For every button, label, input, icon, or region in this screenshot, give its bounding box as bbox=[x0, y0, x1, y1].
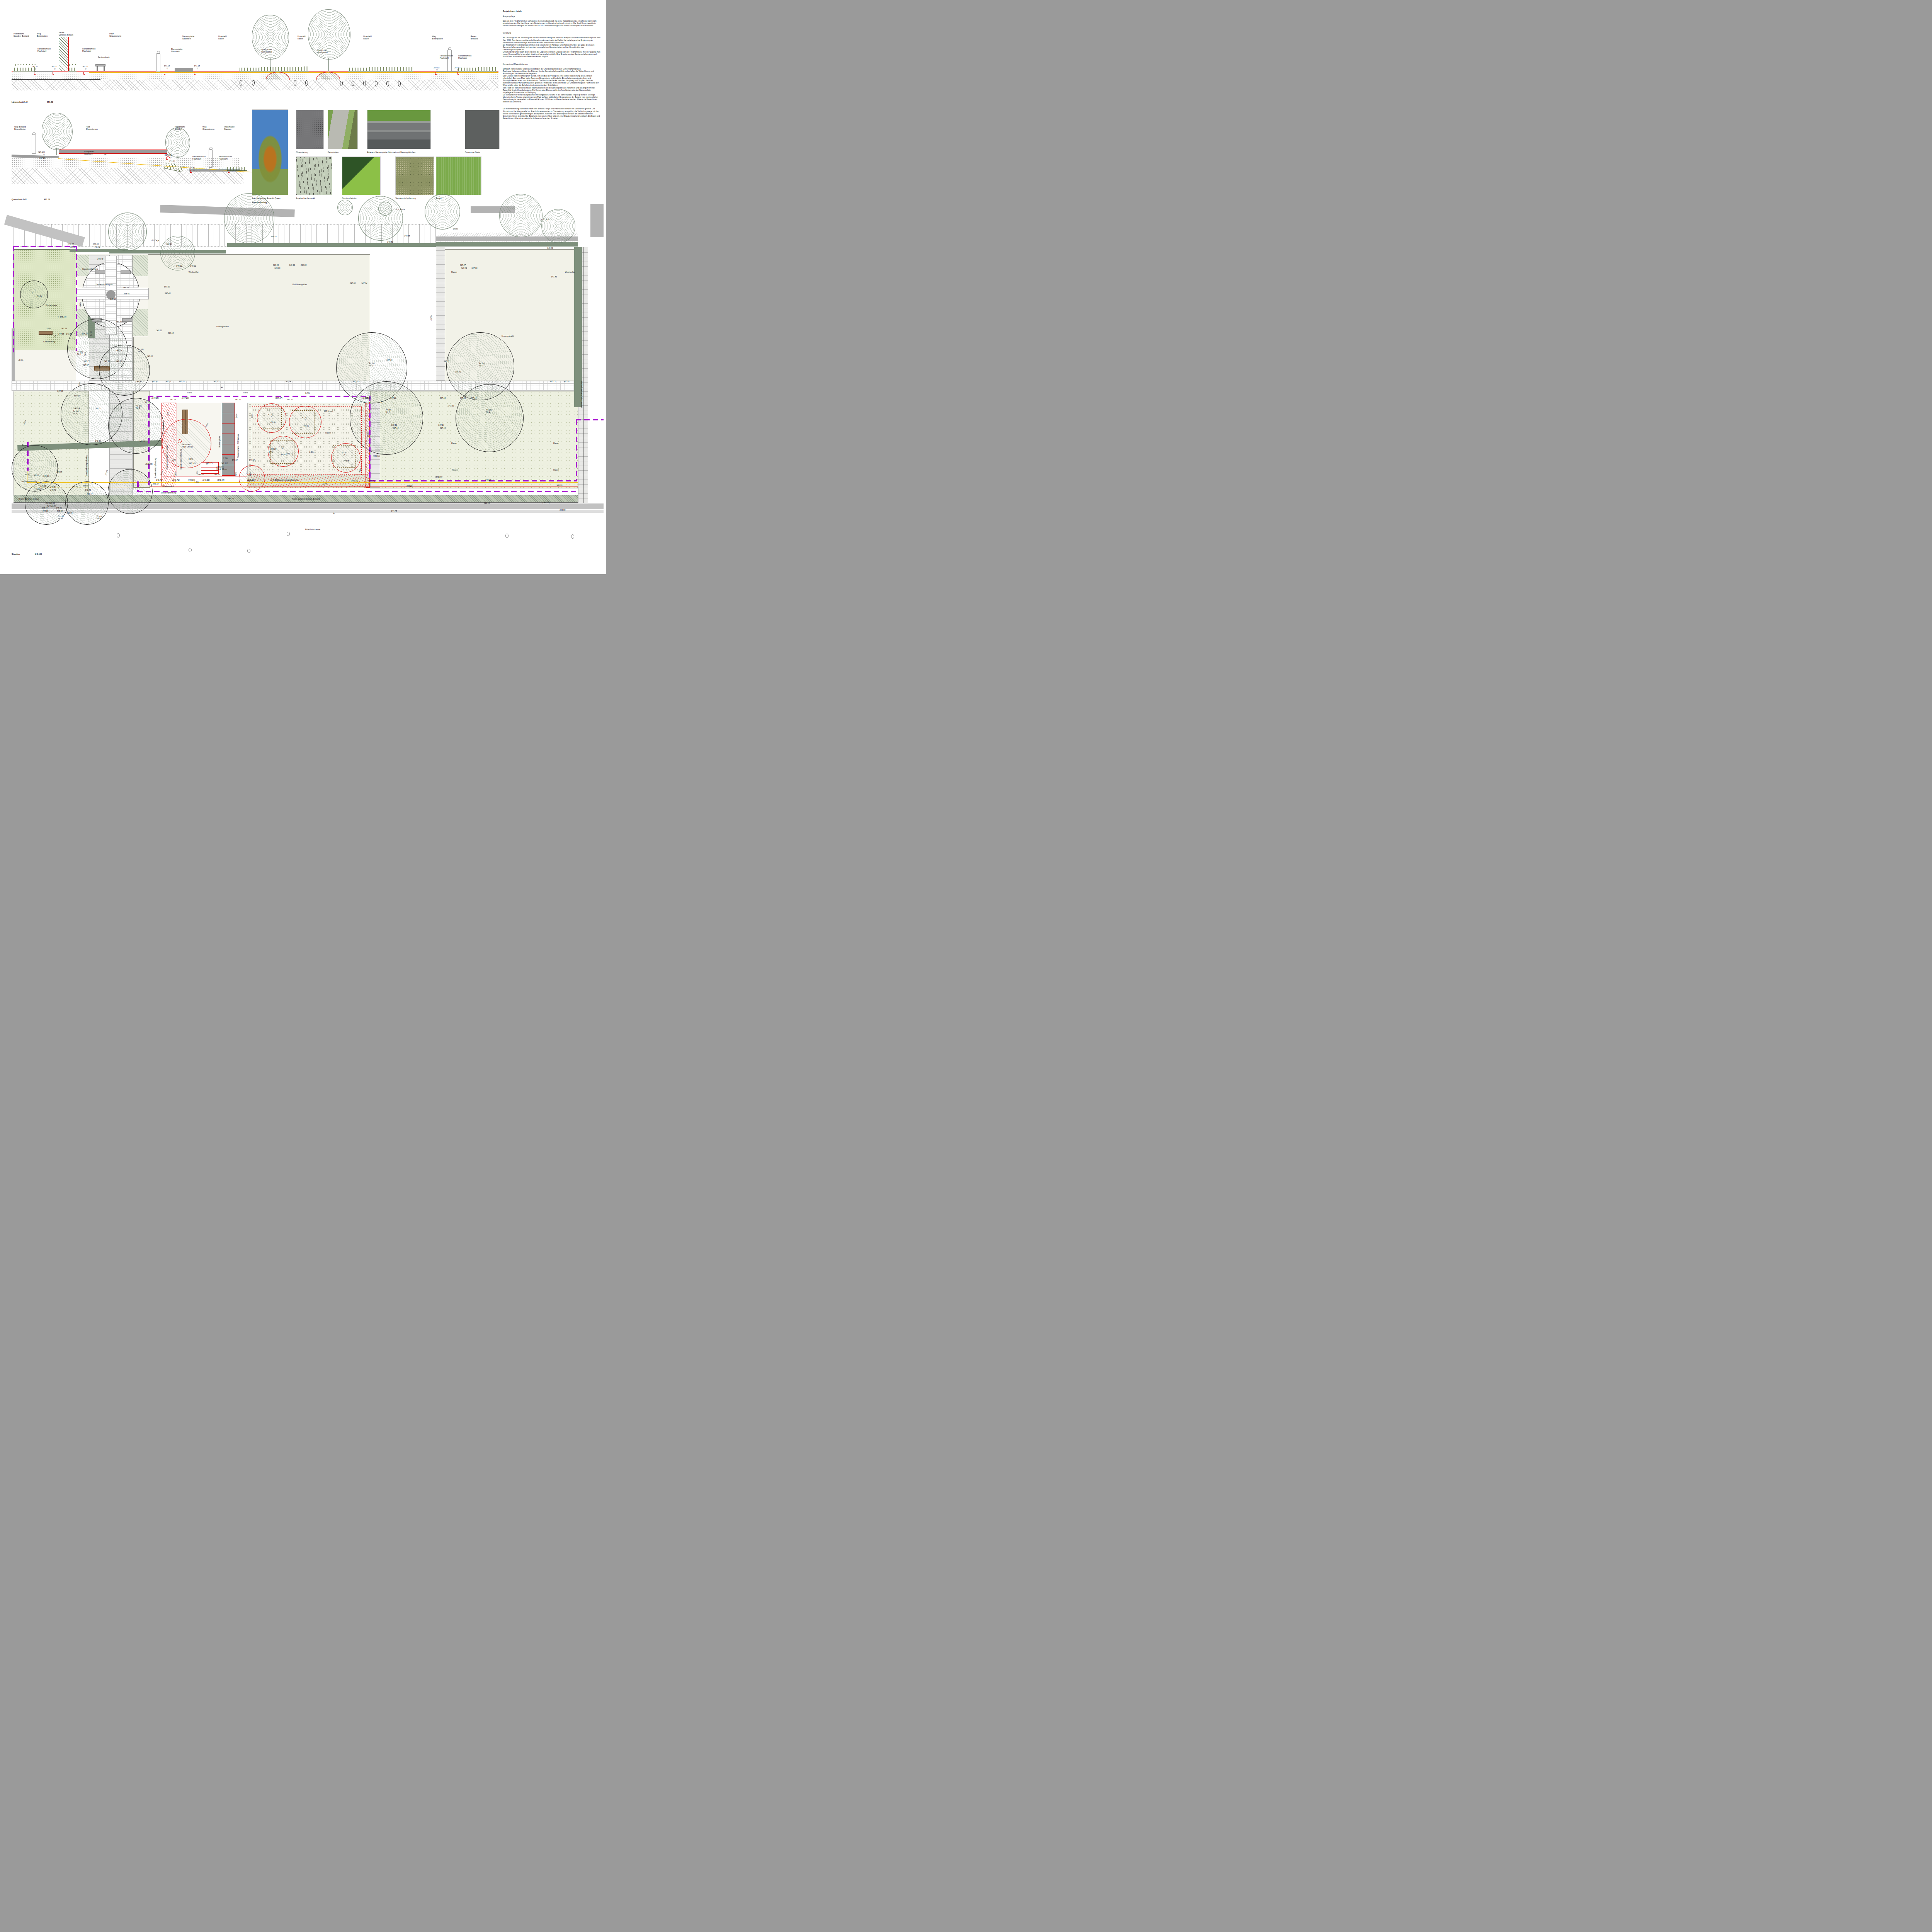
plan-label: 347.87 bbox=[460, 264, 466, 267]
plan-label: Rasen bbox=[451, 271, 457, 274]
plan-label: 349.00 bbox=[274, 267, 280, 270]
plan-label: 348.10 bbox=[168, 332, 173, 335]
plan-label: 4.5% bbox=[269, 451, 273, 454]
plan-label: 347.80 bbox=[66, 333, 72, 335]
plan-label: 346.65 bbox=[198, 474, 204, 476]
plan-label: Am la bbox=[281, 454, 286, 456]
plan-label: ▲ bbox=[206, 463, 208, 465]
plan-label: OK 346.53 bbox=[47, 505, 56, 508]
plan-label: 345.84 bbox=[50, 486, 56, 488]
plan-label: 346.65 bbox=[270, 448, 276, 451]
plan-label: 348.48 bbox=[110, 298, 116, 301]
plan-label: 347.14 bbox=[471, 397, 476, 400]
plan-label: Hecke Carpinus betulus bbox=[19, 498, 39, 500]
plan-sheet: Längsschnitt A-A'M 1:50Pflanzfläche Stau… bbox=[0, 0, 606, 574]
plan-label: 0.4% bbox=[305, 392, 310, 395]
plan-label: 347.41 bbox=[136, 381, 142, 383]
street-label: Friedhofstrasse bbox=[305, 529, 320, 531]
plan-label: 348.12 bbox=[156, 330, 162, 332]
plan-label: 345.82 bbox=[72, 486, 78, 488]
plan-label: Ac (pl) Nr. 6 bbox=[136, 405, 141, 410]
plan-label: OK 346.66 bbox=[46, 502, 55, 505]
plan-label: 349.92 bbox=[166, 243, 172, 246]
plan-label: Am la bbox=[344, 460, 349, 462]
plan-label: Ac (pl) Nr. 7 bbox=[77, 351, 83, 355]
tree-mark: + + + bbox=[342, 451, 347, 456]
plan-label: 346.28 bbox=[485, 479, 491, 481]
plan-label: 346.26 bbox=[556, 485, 562, 487]
plan-label: Am la bbox=[304, 425, 309, 427]
plan-label: 347.20 bbox=[287, 399, 293, 401]
plan-label: 347.18 bbox=[352, 381, 358, 383]
plan-label: 347.14 bbox=[438, 424, 444, 427]
plan-label: 347.33 bbox=[448, 405, 454, 407]
plan-label: 347.20 bbox=[235, 399, 241, 401]
plan-label: 205 Urnen bbox=[324, 410, 333, 413]
plan-label: Urnengrabfeld bbox=[216, 326, 229, 328]
plan-label: Staudenpflanzung bbox=[82, 268, 98, 270]
plan-label: (346.38) bbox=[351, 480, 358, 482]
plan-label: Ac (pl) Nr. 3 bbox=[369, 362, 374, 367]
plan-label: Staudenmischpflanzung bbox=[86, 456, 88, 476]
plan-label: 346.86 bbox=[33, 474, 39, 477]
plan-label: 347.37 bbox=[165, 381, 171, 383]
plan-label: 345.60 bbox=[56, 507, 62, 509]
plan-label: 345.35 bbox=[66, 512, 72, 515]
plan-label: 347.15 bbox=[549, 381, 555, 383]
plan-label: 345.79 bbox=[50, 489, 56, 492]
plan-label: 345.95 bbox=[56, 471, 62, 473]
plan-label: 346.83 bbox=[43, 475, 49, 478]
plan-label: 45% bbox=[196, 471, 199, 474]
plan-label: Rasen bbox=[553, 469, 559, 471]
plan-label: (346.51) bbox=[373, 455, 380, 457]
plan-label: 348.41 bbox=[455, 371, 461, 373]
plan-label: ~6.6% bbox=[23, 420, 27, 425]
plan-label: 350.07 bbox=[68, 243, 74, 246]
tree-mark: + + + bbox=[268, 413, 273, 418]
plan-label: Staudenmischpflanzung bbox=[155, 458, 157, 478]
tree-mark: + + + bbox=[30, 289, 37, 294]
plan-label: 2.0% bbox=[205, 423, 209, 428]
plan-label: Erd-Urnengräber bbox=[293, 284, 307, 286]
plan-label: 347.23 bbox=[170, 399, 176, 401]
plan-label: Wechselflor bbox=[189, 271, 199, 274]
plan-label: Rasen bbox=[325, 432, 331, 434]
plan-label: 347.14 bbox=[460, 397, 466, 400]
plan-label: (347.23) bbox=[182, 397, 189, 400]
plan-label: 346.13 bbox=[484, 502, 490, 505]
plan-label: Am la bbox=[37, 295, 42, 298]
plan-label: 2.0% bbox=[189, 458, 193, 461]
plan-label: 347.13 bbox=[440, 427, 446, 430]
plan-label: 3 Stufen 15+1/ 33 cm bbox=[216, 466, 227, 471]
plan-label: 348.19 bbox=[116, 350, 122, 352]
plan-label: 346.55 bbox=[228, 498, 234, 500]
plan-label: Ac (pl) Nr. 1 bbox=[479, 362, 485, 367]
plan-label: 344.75 bbox=[391, 510, 397, 512]
plan-label: 349.01 bbox=[190, 265, 196, 267]
plan-label: 350.04 bbox=[94, 247, 100, 249]
plan-label: 346.83 bbox=[36, 488, 42, 491]
plan-label: Ac (pl) Nr. 8 bbox=[73, 410, 78, 415]
plan-label: Chaussierung bbox=[43, 341, 55, 343]
plan-label: 347.16 bbox=[440, 397, 446, 400]
neighbor-hedge-label: Hecke Thuja, Nachbarsparzelle bbox=[581, 381, 583, 408]
plan-label: 43% bbox=[235, 472, 237, 476]
plan-label: 6.7% bbox=[78, 382, 81, 387]
plan-label: (346.06) bbox=[543, 502, 550, 504]
plan-label: 347.25 bbox=[213, 381, 219, 383]
plan-label: Rasen bbox=[452, 469, 457, 471]
plan-label: (~348.14) bbox=[58, 316, 66, 318]
tree-mark: + + + bbox=[302, 417, 307, 421]
plan-label: 0.6% bbox=[243, 392, 248, 394]
plan-label: 347.52 bbox=[164, 286, 170, 288]
plan-label: 348.46 bbox=[124, 293, 129, 295]
plan-label: 347.38 bbox=[151, 381, 157, 383]
plan-label: 4.5% bbox=[309, 451, 313, 454]
plan-label: (346.64) bbox=[217, 479, 224, 481]
plan-label: Ac (pl) Nr. 5 bbox=[138, 349, 143, 353]
plan-label: 348.99 bbox=[273, 264, 279, 267]
plan-label: 348.86 bbox=[301, 264, 306, 267]
plan-label: 347.12 bbox=[391, 424, 397, 427]
plan-label: Staudenpflanzung bbox=[161, 492, 176, 494]
plan-label: (346.59) bbox=[270, 479, 278, 481]
section-marker-a2: A' bbox=[381, 401, 383, 403]
plan-label: 347.34 bbox=[74, 395, 80, 397]
plan-label: (347.25) bbox=[151, 397, 159, 400]
plan-label: Staudenmischpflanzung bbox=[180, 449, 182, 469]
plan-label: z.B. Ce ja bbox=[541, 219, 549, 221]
plan-label: 346.86 bbox=[139, 440, 145, 443]
plan-title: Situation bbox=[12, 553, 20, 556]
plan-label: ~3.5% bbox=[430, 315, 433, 321]
plan-label: 3.8% bbox=[46, 328, 51, 330]
plan-label: 347.35 bbox=[179, 381, 184, 383]
plan-label: Cr x la Nr 16 bbox=[97, 515, 102, 520]
plan-label: ~14% bbox=[80, 302, 82, 307]
plan-label: Gemeinschaftsgrab bbox=[96, 284, 112, 286]
section-marker-a: A bbox=[145, 401, 147, 403]
plan-label: 347.40 bbox=[165, 293, 170, 295]
plan-label: 347.73 bbox=[82, 333, 87, 335]
plan-label: 346.87 bbox=[24, 474, 30, 476]
plan-label: 2.6% bbox=[223, 457, 228, 460]
plan-label: 347.21 bbox=[95, 408, 101, 410]
plan-label: (346.77) bbox=[286, 453, 293, 455]
plan-label: 347.85 bbox=[58, 333, 64, 335]
plan-label: 346.26 bbox=[406, 485, 412, 488]
plan-label: 347.70 bbox=[116, 361, 122, 363]
plan-label: (347.17) bbox=[275, 397, 282, 400]
plan-label: (346.29) bbox=[435, 476, 442, 478]
plan-label: 2.0% bbox=[236, 414, 238, 418]
plan-label: z.B. Am la bbox=[396, 209, 405, 211]
plan-label: 347.18 bbox=[386, 359, 392, 362]
plan-label: Rasen bbox=[22, 444, 27, 447]
plan-label: ~6.6% bbox=[160, 471, 163, 476]
plan-label: 346.77 bbox=[87, 493, 92, 495]
plan-label: ~4.3% bbox=[18, 359, 23, 362]
plan-label: 347.86 bbox=[551, 276, 557, 278]
plan-label: Ac (pl) Nr. 2 bbox=[486, 409, 492, 413]
plan-label: Hecke neu Carpinus betulus bbox=[166, 445, 168, 469]
plan-label: 347.89 bbox=[61, 328, 67, 330]
plan-label: Hecke Carpinus betulus Bestand bbox=[292, 498, 320, 500]
plan-label: 347.86 bbox=[350, 282, 355, 285]
plan-label: 347.13 bbox=[393, 427, 398, 430]
plan-label: 348.92 bbox=[289, 264, 295, 267]
plan-label: 349.53 bbox=[387, 241, 393, 243]
plan-label: 0.6% bbox=[187, 392, 192, 394]
plan-label: 345.65 bbox=[43, 510, 48, 512]
plan-label: 9.7% bbox=[367, 432, 369, 437]
plan-label: 348.53 bbox=[123, 287, 129, 289]
plan-label: 347.145 bbox=[189, 463, 196, 465]
plan-label: Staudenpflanzung bbox=[21, 481, 37, 483]
plan-label: Chaussierung bbox=[162, 485, 174, 488]
siteplan-labels: SituationM 1:100Friedhofstrasse⊗z.B. Ce … bbox=[0, 0, 606, 574]
plan-label: 17.3% bbox=[105, 470, 109, 476]
plan-label: 346.72 bbox=[153, 483, 158, 485]
plan-label: Staudenmischpflanzung bbox=[277, 479, 298, 481]
plan-label: Bu se bbox=[90, 331, 92, 336]
plan-label: 345.59 bbox=[57, 510, 63, 512]
plan-label: 347.07 bbox=[249, 459, 255, 461]
tree-mark: + + + bbox=[279, 445, 284, 450]
plan-label: Urnengrabfeld bbox=[502, 335, 514, 338]
plan-label: 345.89 bbox=[40, 485, 46, 488]
plan-label: Rasen bbox=[553, 442, 559, 445]
plan-label: 347.49 bbox=[57, 390, 63, 393]
plan-label: 38% bbox=[175, 472, 177, 476]
plan-label: 2.0% bbox=[251, 414, 253, 418]
plan-label: (347.14) bbox=[362, 397, 370, 400]
plan-label: 346.73 bbox=[156, 479, 162, 481]
plan-label: 44% bbox=[250, 472, 252, 476]
plan-label: 348.89 bbox=[547, 247, 553, 250]
plan-label: Blumenplatte bbox=[219, 436, 221, 447]
plan-label: 2% bbox=[54, 334, 57, 338]
plan-label: 1.3% bbox=[167, 412, 169, 417]
plan-label: Wechselflor bbox=[565, 271, 575, 274]
plan-label: Rasen bbox=[451, 442, 457, 445]
plan-label: 347.73 bbox=[83, 361, 89, 363]
plan-label: Am la bbox=[270, 421, 276, 423]
plan-label: Blumenwiese bbox=[46, 304, 57, 307]
plan-label: 346.69 bbox=[95, 440, 101, 442]
plan-label: 346.80 bbox=[85, 489, 91, 492]
plan-label: 347.72 bbox=[104, 361, 110, 363]
plan-label: (346.71) bbox=[172, 479, 180, 481]
plan-label: 349.70 bbox=[270, 236, 276, 238]
plan-label: 344.55 bbox=[560, 509, 565, 512]
plan-label: Wiese bbox=[453, 228, 458, 230]
plan-label: 347.65 bbox=[147, 355, 153, 358]
plan-label: Namensplatte - 200 Namen bbox=[237, 434, 240, 458]
survey-symbol: ⊗ bbox=[333, 512, 335, 515]
plan-label: 347.115 bbox=[221, 463, 228, 465]
plan-label: 347.57 bbox=[83, 364, 88, 367]
plan-label: Ac (pl) Nr. 4 bbox=[386, 409, 391, 413]
plan-label: 1.7% bbox=[194, 481, 199, 484]
plan-scale: M 1:100 bbox=[35, 553, 42, 556]
plan-label: (346.66) bbox=[202, 479, 210, 481]
plan-label: 347.24 bbox=[74, 408, 80, 410]
plan-label: 349.01 bbox=[176, 265, 182, 267]
plan-label: 347.90 bbox=[471, 267, 477, 270]
plan-label: 347.24 bbox=[285, 381, 291, 383]
plan-label: 349.48 bbox=[97, 258, 103, 260]
plan-label: 346.80 bbox=[83, 485, 88, 487]
section-marker-b2: B' bbox=[215, 497, 217, 499]
plan-label: 348.36 bbox=[116, 321, 122, 323]
plan-label: (346.80) bbox=[145, 463, 153, 466]
plan-label: 349.65 bbox=[404, 235, 410, 237]
plan-label: 9.7% bbox=[359, 468, 362, 473]
plan-label: 347.16 bbox=[390, 397, 396, 400]
plan-label: (346.61) bbox=[247, 479, 255, 481]
plan-label: 347.89 bbox=[461, 267, 467, 270]
plan-label: 350.05 bbox=[93, 243, 99, 246]
plan-label: Baum neu Ac pl 'Em Qu' bbox=[182, 444, 193, 448]
plan-label: 347.84 bbox=[361, 282, 367, 285]
plan-label: 350.06 bbox=[70, 247, 75, 249]
plan-label: (346.36) bbox=[368, 480, 375, 482]
plan-label: 347.22 bbox=[444, 361, 449, 363]
plan-label: (346.69) bbox=[188, 479, 195, 481]
plan-label: 346.65 bbox=[214, 474, 220, 476]
plan-label: 347.07 bbox=[232, 459, 238, 461]
plan-label: Cr x la Nr. 15 bbox=[58, 515, 63, 520]
plan-label: 7.6% bbox=[84, 352, 87, 357]
plan-label: 1.7% bbox=[323, 483, 327, 485]
plan-label: 23% bbox=[172, 459, 176, 461]
plan-label: z.B. Ce ja bbox=[151, 240, 159, 242]
plan-label: 347.16 bbox=[563, 381, 569, 383]
section-marker-b: B bbox=[221, 386, 223, 388]
